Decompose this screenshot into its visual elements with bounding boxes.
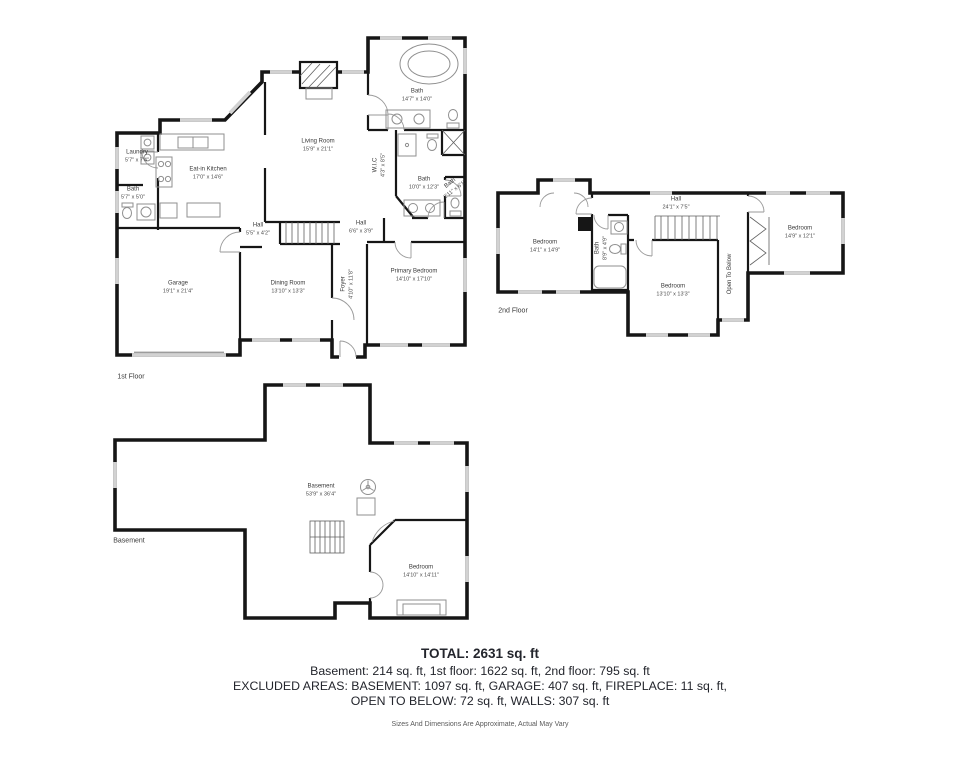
- front-door: [339, 341, 356, 360]
- room-label-hall-second: Hall 24'1" x 7'5": [662, 197, 689, 212]
- room-label-living: Living Room 15'9" x 21'1": [301, 139, 334, 154]
- basement-outer-walls: [115, 385, 467, 618]
- room-label-hall-small: Hall 5'5" x 4'2": [246, 223, 270, 238]
- room-label-open-to-below: Open To Below: [727, 254, 735, 295]
- garage-door: [132, 352, 226, 355]
- closet-icon: [442, 130, 465, 155]
- chimney: [578, 217, 592, 231]
- room-label-bath-top: Bath 14'7" x 14'0": [402, 89, 432, 104]
- stairs-icon: [655, 216, 720, 240]
- bath-mid-fixtures: [398, 134, 440, 216]
- utility-box: [357, 498, 375, 515]
- room-label-bedroom-mid: Bedroom 13'10" x 13'3": [656, 284, 689, 299]
- floor-areas: Basement: 214 sq. ft, 1st floor: 1622 sq…: [0, 664, 960, 678]
- room-label-bedroom-right: Bedroom 14'9" x 12'1": [785, 226, 815, 241]
- egress-window-icon: [397, 600, 446, 615]
- bathtub-icon: [400, 44, 458, 84]
- room-label-wic: W.I.C 4'3" x 8'5": [373, 153, 388, 177]
- bifold-closet-icon: [750, 217, 769, 265]
- floor-tag-second: 2nd Floor: [498, 308, 528, 315]
- second-floor-interior-walls: [592, 193, 748, 320]
- area-summary: TOTAL: 2631 sq. ft Basement: 214 sq. ft,…: [0, 646, 960, 728]
- powder-bath-fixtures: [122, 203, 155, 220]
- room-label-bath-mid: Bath 10'0" x 12'3": [409, 177, 439, 192]
- room-label-basement: Basement 53'9" x 36'4": [306, 484, 336, 499]
- basement-windows: [115, 385, 467, 582]
- toilet-icon: [610, 244, 627, 254]
- stairs-icon: [310, 521, 344, 553]
- room-label-foyer: Foyer 4'10" x 11'8": [341, 269, 356, 299]
- second-floor-door-arcs: [540, 193, 764, 256]
- first-floor-interior-walls: [117, 72, 465, 357]
- fireplace-icon: [300, 62, 337, 99]
- room-label-bath-small: Bath 5'7" x 5'0": [121, 187, 145, 202]
- first-floor-plan: [117, 38, 465, 360]
- floor-tag-basement: Basement: [113, 538, 145, 545]
- room-label-hall-first: Hall 6'6" x 3'9": [349, 221, 373, 236]
- room-label-basement-bedroom: Bedroom 14'10" x 14'11": [403, 565, 439, 580]
- toilet-icon: [450, 198, 461, 216]
- room-label-kitchen: Eat-in Kitchen 17'0" x 14'6": [189, 167, 226, 182]
- vanity-sinks-icon: [386, 110, 459, 129]
- room-label-dining: Dining Room 13'10" x 13'3": [271, 281, 306, 296]
- floorplan-page: Laundry 5'7" x 7'4" Bath 5'7" x 5'0" Eat…: [0, 0, 960, 768]
- bathtub-icon: [594, 266, 626, 288]
- excluded-areas-2: OPEN TO BELOW: 72 sq. ft, WALLS: 307 sq.…: [0, 694, 960, 708]
- basement-interior-walls: [370, 520, 467, 603]
- excluded-areas-1: EXCLUDED AREAS: BASEMENT: 1097 sq. ft, G…: [0, 679, 960, 693]
- room-label-primary-bedroom: Primary Bedroom 14'10" x 17'10": [391, 269, 438, 284]
- room-label-laundry: Laundry 5'7" x 7'4": [125, 150, 149, 165]
- total-area: TOTAL: 2631 sq. ft: [0, 646, 960, 661]
- room-label-garage: Garage 19'1" x 21'4": [163, 281, 193, 296]
- floor-tag-first: 1st Floor: [117, 374, 144, 381]
- room-label-bath-second: Bath 8'9" x 4'9": [595, 236, 610, 260]
- ceiling-fan-icon: [361, 480, 376, 495]
- first-floor-outer-walls: [117, 38, 465, 357]
- sink-icon: [611, 221, 627, 234]
- disclaimer-text: Sizes And Dimensions Are Approximate, Ac…: [0, 721, 960, 728]
- basement-closet-arcs: [370, 572, 383, 598]
- room-label-bedroom-left: Bedroom 14'1" x 14'9": [530, 240, 560, 255]
- basement-plan: [115, 385, 467, 618]
- stairs-icon: [286, 222, 334, 244]
- first-floor-windows: [117, 38, 465, 345]
